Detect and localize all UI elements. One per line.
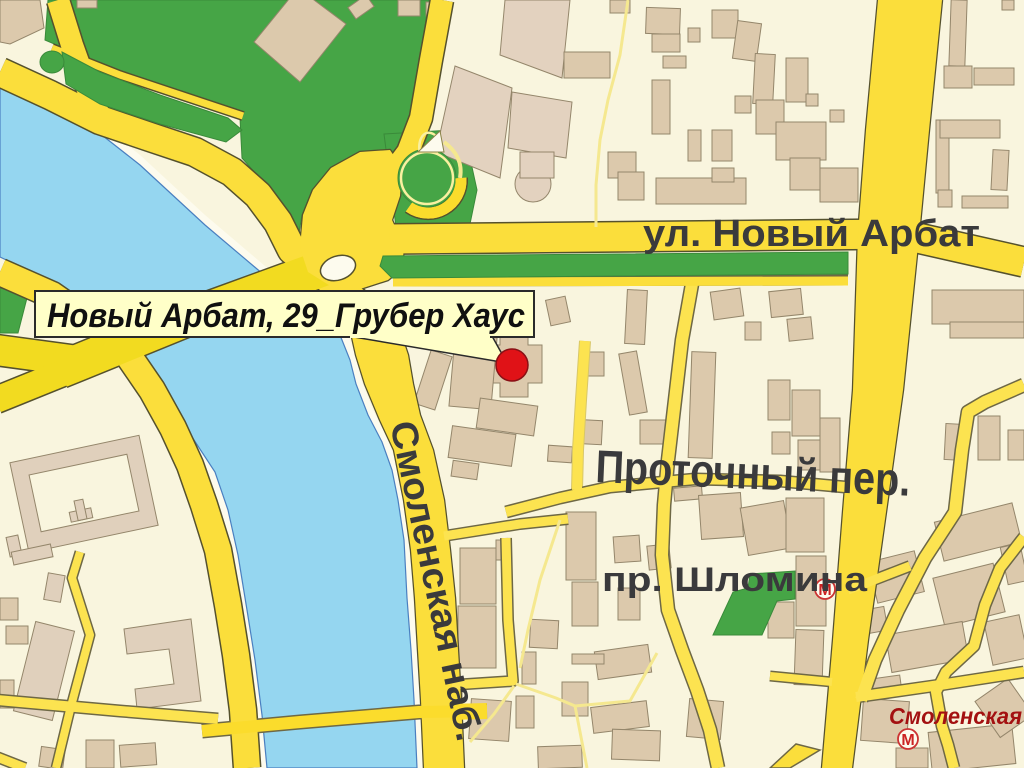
svg-text:ул. Новый Арбат: ул. Новый Арбат (643, 213, 980, 255)
svg-text:Новый Арбат, 29_Грубер Хаус: Новый Арбат, 29_Грубер Хаус (47, 297, 525, 335)
svg-text:пр. Шломина: пр. Шломина (602, 561, 868, 599)
svg-text:Смоленская: Смоленская (889, 703, 1022, 729)
svg-text:М: М (901, 732, 914, 749)
